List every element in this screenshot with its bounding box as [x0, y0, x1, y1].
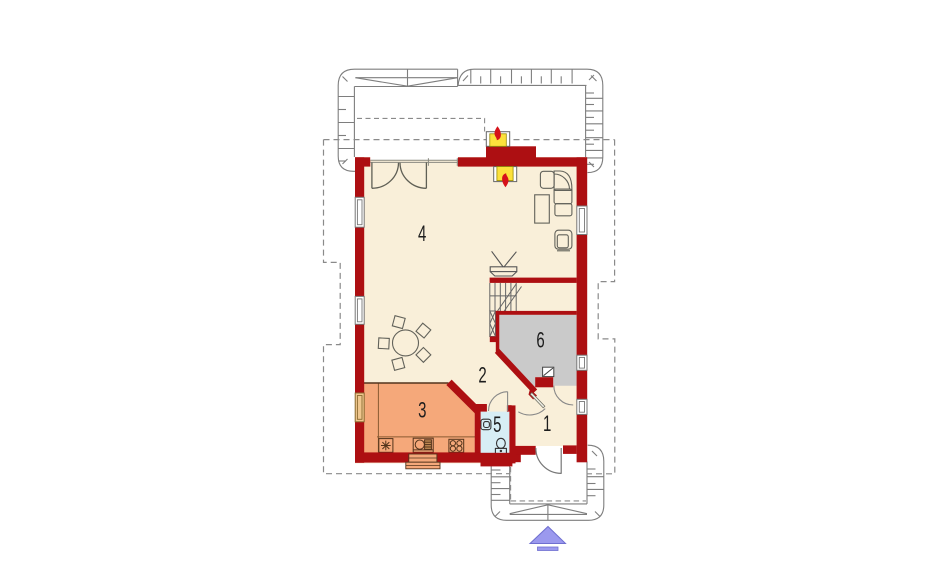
svg-text:3: 3 — [418, 398, 426, 423]
svg-text:5: 5 — [493, 412, 501, 437]
svg-text:1: 1 — [543, 411, 551, 436]
svg-text:2: 2 — [478, 363, 486, 388]
svg-text:6: 6 — [536, 328, 544, 353]
svg-text:4: 4 — [418, 221, 426, 246]
